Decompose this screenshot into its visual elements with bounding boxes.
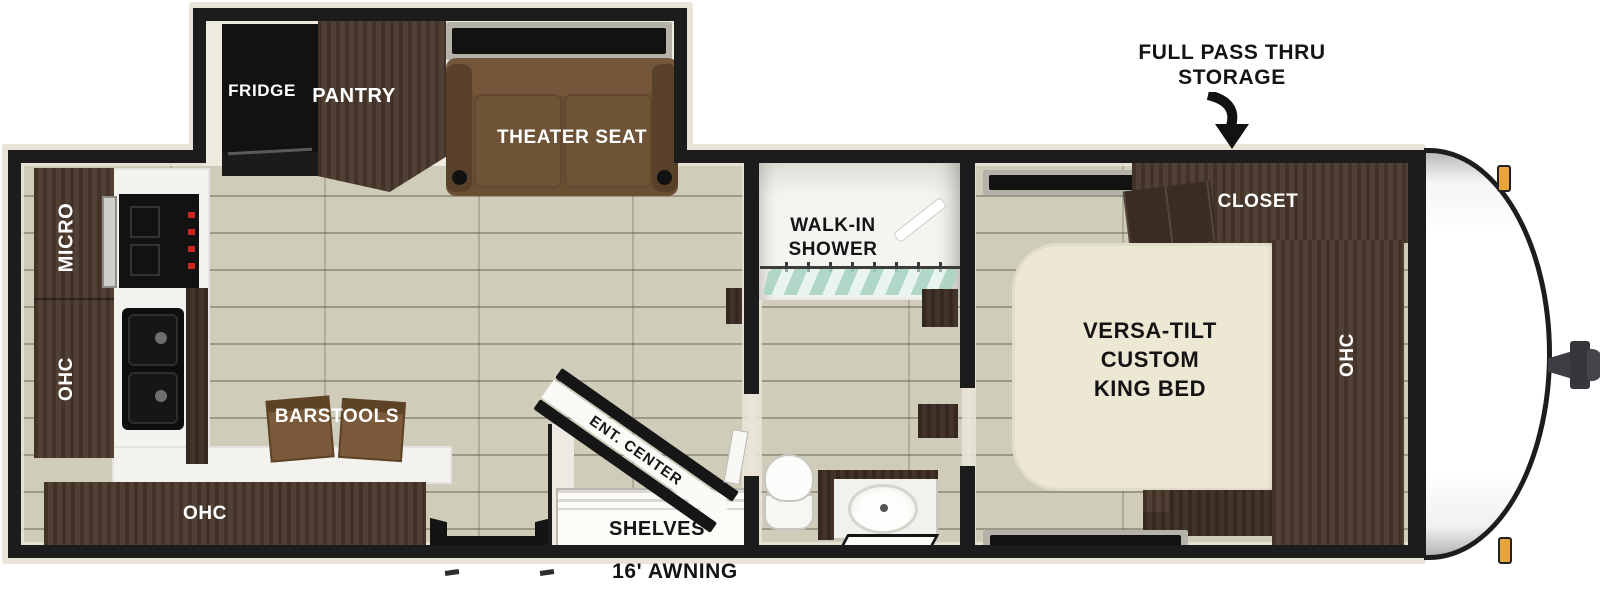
slideout-wall-right bbox=[674, 8, 687, 163]
marker-light-bottom bbox=[1498, 537, 1512, 564]
pass-thru-line2: STORAGE bbox=[1107, 65, 1357, 90]
pass-thru-annotation: FULL PASS THRU STORAGE bbox=[1107, 40, 1357, 90]
vanity-faucet bbox=[880, 504, 888, 512]
wall-bottom bbox=[8, 545, 1417, 558]
kitchen-ohc-upper-label: OHC bbox=[56, 329, 78, 429]
tv-wall-panel bbox=[726, 288, 742, 324]
vanity-top-panel bbox=[818, 470, 938, 479]
bath-cabinet-upper bbox=[922, 289, 958, 327]
micro-label: MICRO bbox=[56, 188, 79, 288]
barstools-label: BARSTOOLS bbox=[257, 406, 417, 428]
bed-label-line1: VERSA-TILT bbox=[1040, 318, 1260, 344]
kitchen-ohc-lower-label: OHC bbox=[150, 503, 260, 525]
bathroom-wall-right-upper bbox=[960, 160, 975, 388]
theater-seat-label: THEATER SEAT bbox=[482, 127, 662, 149]
sink-drain-top bbox=[155, 332, 167, 344]
pass-thru-arrow bbox=[1198, 92, 1262, 152]
wall-top-left bbox=[8, 150, 202, 163]
pantry-label: PANTRY bbox=[304, 85, 404, 108]
rv-floorplan-diagram: FRIDGE PANTRY THEATER SEAT MICRO OHC OHC… bbox=[0, 0, 1600, 591]
slideout-wall-left bbox=[193, 8, 206, 163]
bathroom-wall-right-lower bbox=[960, 466, 975, 546]
stove-burner-2 bbox=[130, 244, 160, 276]
shower-label-line2: SHOWER bbox=[763, 239, 903, 261]
bath-mirror-panel bbox=[918, 404, 958, 438]
cupholder-left bbox=[452, 170, 467, 185]
vanity-side-panel bbox=[818, 470, 834, 540]
theater-window-glass bbox=[452, 28, 666, 54]
awning-bracket-1 bbox=[445, 569, 460, 576]
sink-drain-bottom bbox=[155, 390, 167, 402]
sink-basin-bottom bbox=[128, 372, 178, 424]
entry-step-left bbox=[430, 518, 447, 542]
awning-bracket-2 bbox=[540, 569, 555, 576]
shower-label-line1: WALK-IN bbox=[763, 215, 903, 237]
fridge-label: FRIDGE bbox=[212, 81, 312, 101]
wall-front bbox=[1408, 150, 1426, 558]
hitch-coupler bbox=[1587, 349, 1600, 381]
pass-thru-line1: FULL PASS THRU bbox=[1107, 40, 1357, 65]
bedroom-ohc-label: OHC bbox=[1337, 305, 1359, 405]
stove-burner-1 bbox=[130, 206, 160, 238]
slideout-wall-top bbox=[193, 8, 687, 21]
front-cap bbox=[1424, 148, 1552, 560]
bed-label-line3: KING BED bbox=[1040, 376, 1260, 402]
microwave-door bbox=[102, 196, 117, 288]
theater-seat-back bbox=[472, 62, 652, 96]
toilet-bowl bbox=[764, 454, 814, 502]
closet-label: CLOSET bbox=[1188, 191, 1328, 213]
counter-end-panel bbox=[186, 288, 208, 464]
bed-foot-bench-step bbox=[1143, 490, 1169, 512]
stove-knobs bbox=[188, 212, 195, 278]
bed-label-line2: CUSTOM bbox=[1040, 347, 1260, 373]
kitchen-cabinet-divider bbox=[34, 298, 114, 300]
cupholder-right bbox=[657, 170, 672, 185]
wall-left bbox=[8, 150, 21, 558]
bedroom-window-top-glass bbox=[989, 175, 1149, 190]
bathroom-wall-left-upper bbox=[744, 160, 759, 394]
awning-label: 16' AWNING bbox=[555, 560, 795, 584]
bathroom-wall-left-lower bbox=[744, 476, 759, 546]
marker-light-top bbox=[1497, 165, 1511, 192]
wall-top-right bbox=[680, 150, 1417, 163]
sink-basin-top bbox=[128, 314, 178, 366]
